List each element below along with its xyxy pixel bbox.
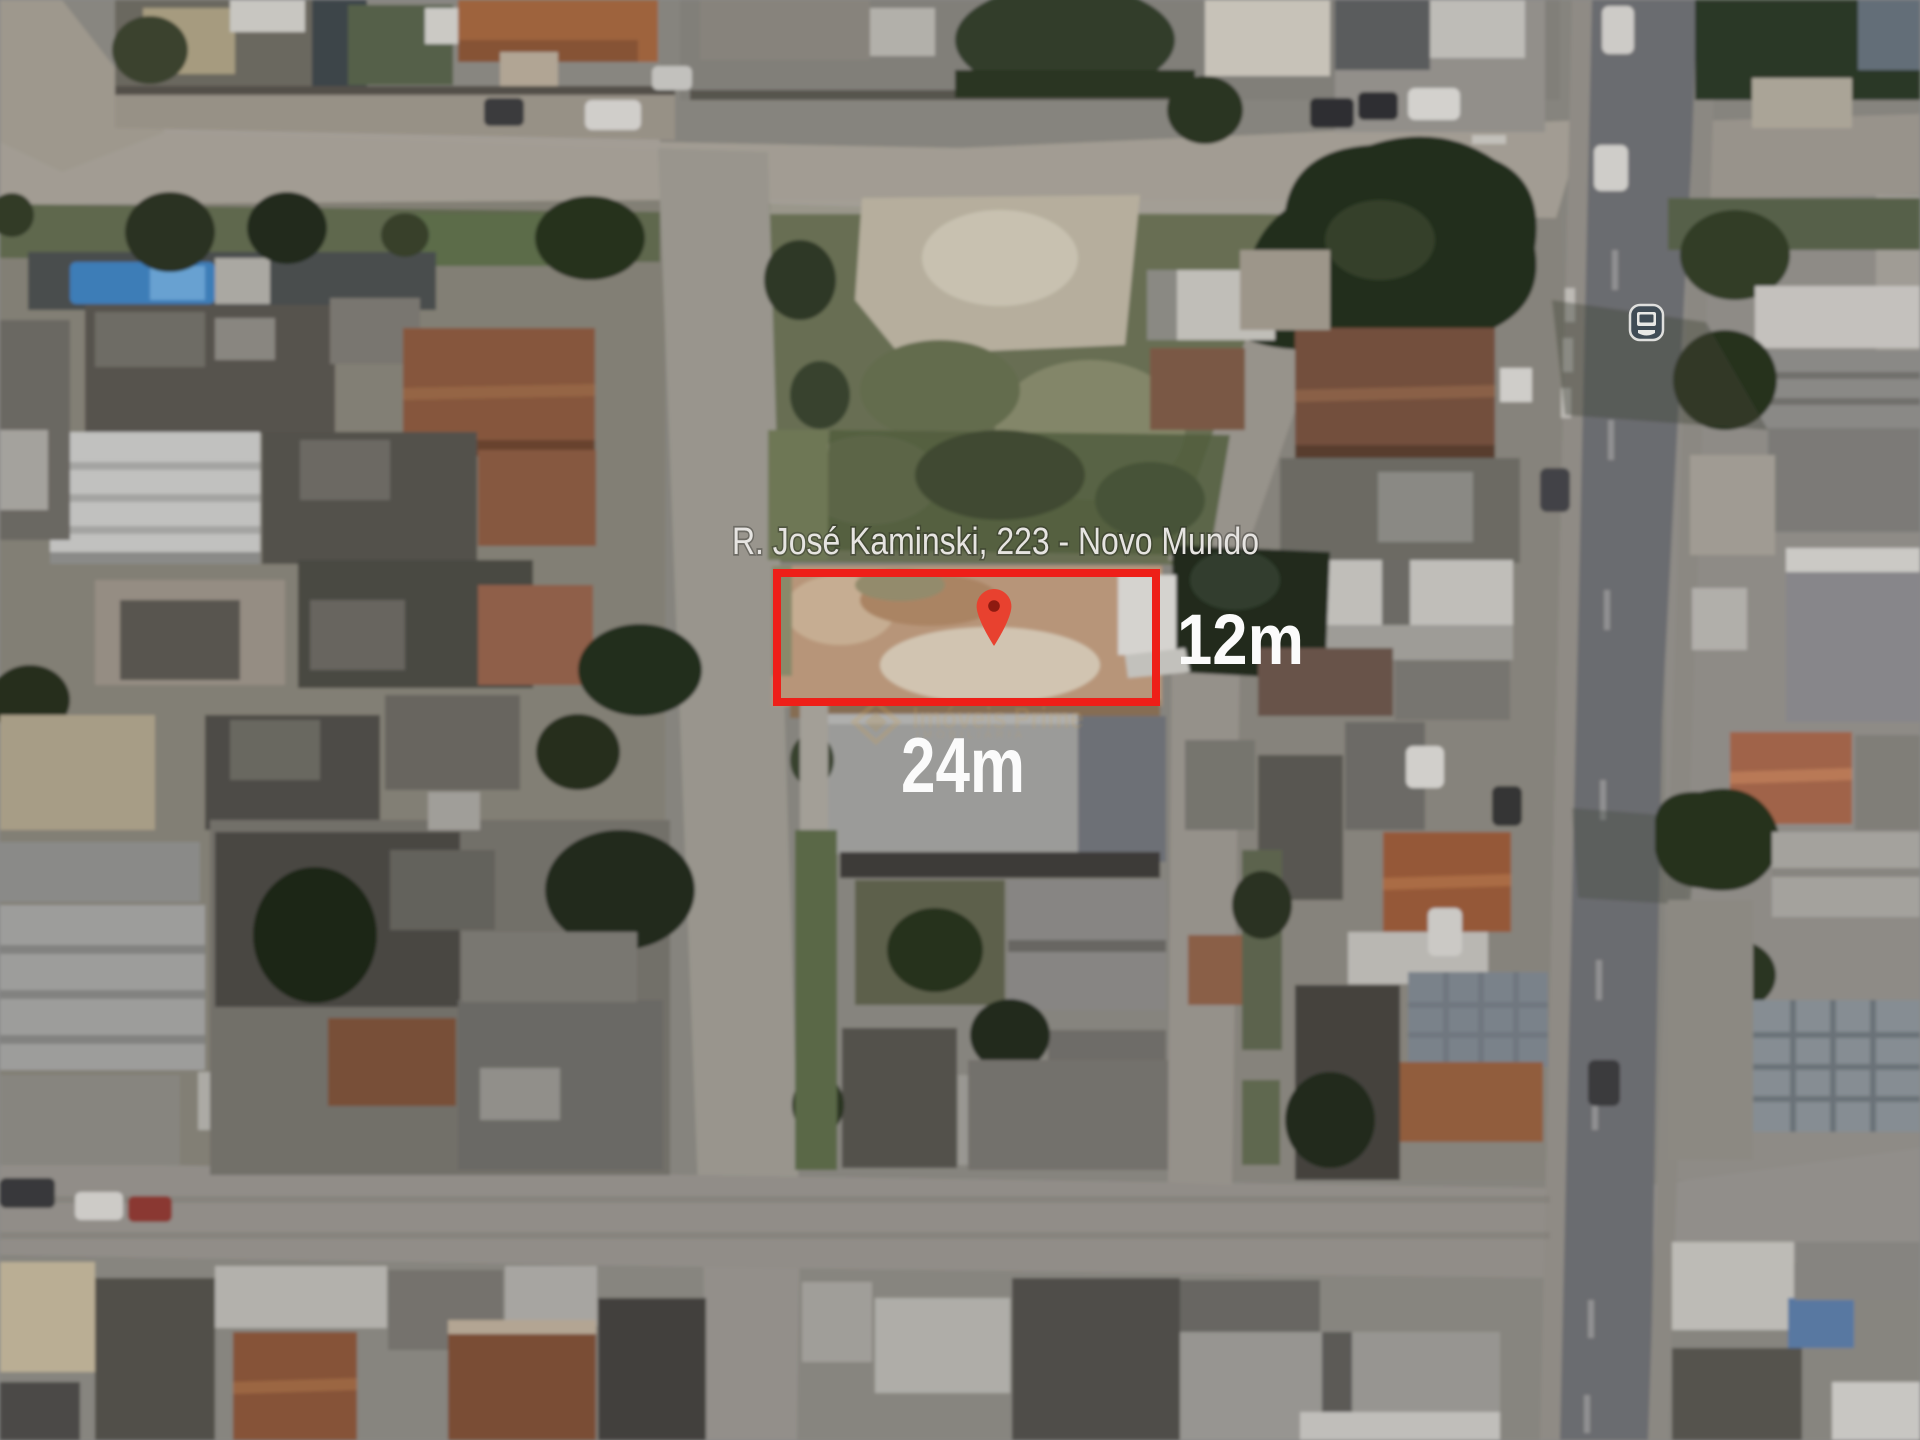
svg-text:12m: 12m [1177, 601, 1304, 680]
svg-text:24m: 24m [901, 721, 1025, 809]
svg-text:R. José Kaminski, 223 - Novo M: R. José Kaminski, 223 - Novo Mundo [732, 521, 1259, 563]
